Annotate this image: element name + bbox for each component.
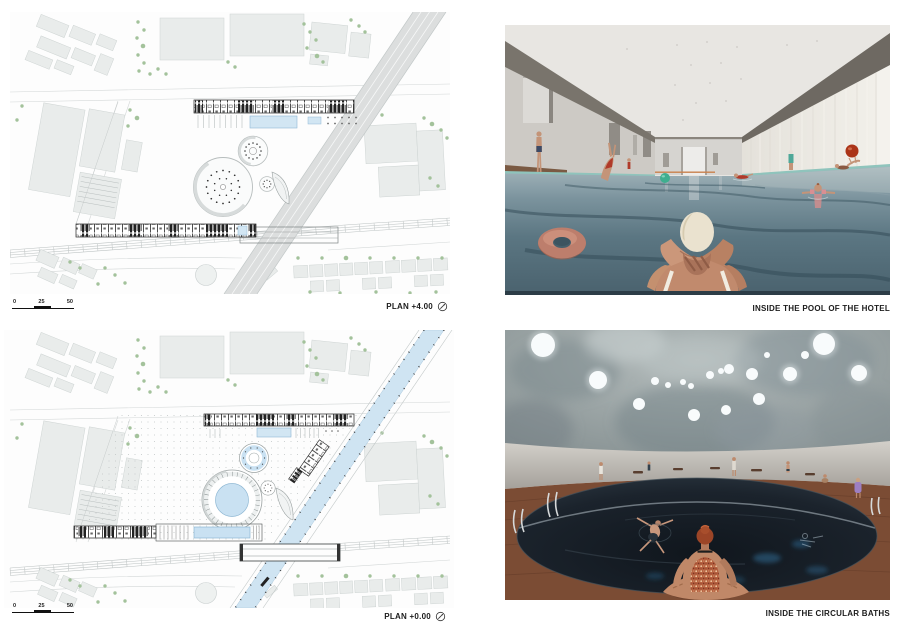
far-wall	[655, 137, 742, 175]
small-rotunda-ground	[261, 481, 275, 495]
site-plan-plus0	[4, 330, 454, 608]
circular-pool-water	[216, 484, 249, 517]
south-strip-building	[76, 224, 256, 237]
standing-bather-right	[786, 461, 789, 472]
red-ball	[846, 145, 859, 158]
small-rotunda-roof	[260, 177, 275, 192]
scale-label-50: 50	[67, 299, 73, 305]
hotel-strip-building	[194, 100, 354, 113]
medium-rotunda-ground	[240, 444, 269, 473]
standing-bather-mid	[648, 462, 651, 471]
presentation-board: 0 25 50 PLAN +4.00	[0, 0, 915, 640]
scale-label-0: 0	[13, 603, 16, 609]
scale-label-0: 0	[13, 299, 16, 305]
render-pool-caption: INSIDE THE POOL OF THE HOTEL	[752, 304, 890, 313]
scale-label-25: 25	[38, 603, 44, 609]
scale-label-50: 50	[67, 603, 73, 609]
north-arrow-icon	[437, 301, 448, 312]
circular-baths-render	[505, 330, 890, 600]
panel-render-baths: INSIDE THE CIRCULAR BATHS	[505, 330, 890, 600]
hotel-pool-render	[505, 25, 890, 295]
scale-bar-bottom: 0 25 50	[12, 603, 74, 614]
plan-top-caption-row: PLAN +4.00	[386, 301, 448, 312]
panel-plan-top: 0 25 50 PLAN +4.00	[10, 12, 450, 294]
canal-rail-bridge	[240, 544, 340, 561]
north-arrow-icon	[435, 611, 446, 622]
site-plan-plus4	[10, 12, 450, 294]
plan-top-caption: PLAN +4.00	[386, 302, 433, 311]
panel-render-pool: INSIDE THE POOL OF THE HOTEL	[505, 25, 890, 295]
hotel-strip-building-ground	[204, 414, 354, 426]
lap-pool-plan	[250, 116, 297, 128]
scale-bar: 0 25 50	[12, 299, 74, 310]
panel-plan-bottom: 0 25 50 PLAN +0.00	[4, 330, 454, 608]
plan-bottom-caption: PLAN +0.00	[384, 612, 431, 621]
bottom-water-strip	[505, 291, 890, 295]
render-baths-caption: INSIDE THE CIRCULAR BATHS	[766, 609, 890, 618]
south-strip-building-ground	[74, 526, 156, 538]
scale-label-25: 25	[38, 299, 44, 305]
plan-bottom-caption-row: PLAN +0.00	[384, 611, 446, 622]
small-far-figure	[627, 158, 631, 169]
render-pool-caption-row: INSIDE THE POOL OF THE HOTEL	[752, 304, 890, 313]
small-pool-plan	[257, 428, 291, 437]
green-ball	[660, 173, 670, 183]
render-baths-caption-row: INSIDE THE CIRCULAR BATHS	[766, 609, 890, 618]
